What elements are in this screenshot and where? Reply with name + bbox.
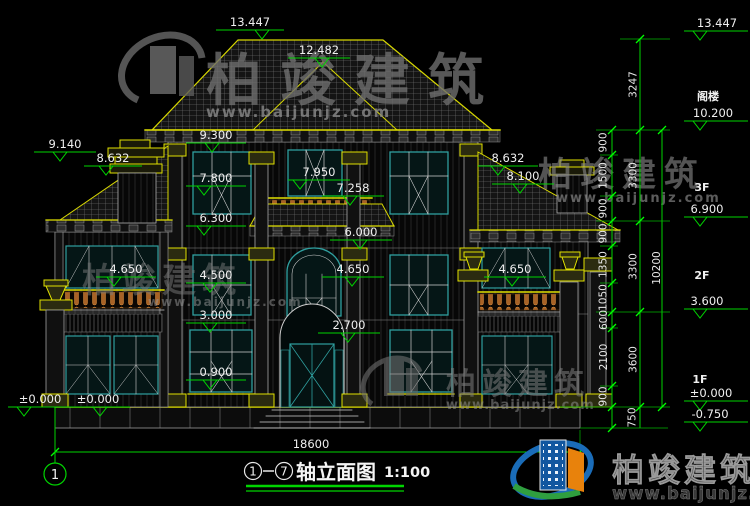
svg-text:±0.000: ±0.000 xyxy=(690,386,733,400)
svg-text:8.100: 8.100 xyxy=(507,169,540,183)
svg-text:±0.000: ±0.000 xyxy=(77,392,120,406)
svg-text:1350: 1350 xyxy=(598,251,610,278)
svg-text:6.000: 6.000 xyxy=(345,225,378,239)
watermark-url-text: www.baijunjz.com xyxy=(206,103,391,121)
svg-text:3300: 3300 xyxy=(628,253,640,280)
svg-text:4.650: 4.650 xyxy=(499,262,532,276)
svg-text:600: 600 xyxy=(598,310,610,330)
svg-text:2100: 2100 xyxy=(598,344,610,371)
svg-text:8.632: 8.632 xyxy=(97,151,130,165)
svg-text:900: 900 xyxy=(598,198,610,218)
svg-text:www.baijunjz.com: www.baijunjz.com xyxy=(148,295,303,309)
svg-text:18600: 18600 xyxy=(293,437,330,451)
svg-text:3600: 3600 xyxy=(628,346,640,373)
svg-text:7.258: 7.258 xyxy=(337,181,370,195)
svg-text:13.447: 13.447 xyxy=(230,15,270,29)
svg-text:www.baijunjz.com: www.baijunjz.com xyxy=(446,398,595,413)
svg-text:1050: 1050 xyxy=(598,284,610,311)
svg-text:1: 1 xyxy=(51,468,59,483)
svg-text:0.900: 0.900 xyxy=(200,365,233,379)
window-3f-right xyxy=(390,152,448,214)
brand-url-text: www.baijunjz.com xyxy=(612,484,750,503)
svg-text:3.000: 3.000 xyxy=(200,308,233,322)
svg-text:6.300: 6.300 xyxy=(200,211,233,225)
total-height-dim: 10200 xyxy=(651,251,663,284)
svg-text:3.600: 3.600 xyxy=(691,294,724,308)
logo-building-icon xyxy=(384,360,404,396)
svg-text:柏竣建筑: 柏竣建筑 xyxy=(446,367,590,402)
svg-text:7.800: 7.800 xyxy=(200,171,233,185)
svg-text:13.447: 13.447 xyxy=(697,16,737,30)
svg-text:7: 7 xyxy=(280,465,288,479)
floor-label-attic: 阁楼 xyxy=(697,89,719,103)
svg-text:4.500: 4.500 xyxy=(200,268,233,282)
svg-text:2.700: 2.700 xyxy=(333,318,366,332)
svg-text:12.482: 12.482 xyxy=(299,43,339,57)
svg-text:7.950: 7.950 xyxy=(303,165,336,179)
svg-text:3247: 3247 xyxy=(628,71,640,98)
title-text: 轴立面图 xyxy=(296,460,376,484)
title-scale: 1:100 xyxy=(384,465,430,481)
svg-text:-0.750: -0.750 xyxy=(691,407,728,421)
svg-text:9.300: 9.300 xyxy=(200,128,233,142)
window-1f-left xyxy=(188,330,254,394)
svg-text:3300: 3300 xyxy=(628,162,640,189)
svg-text:10.200: 10.200 xyxy=(693,106,733,120)
svg-text:9.140: 9.140 xyxy=(49,137,82,151)
svg-text:900: 900 xyxy=(598,223,610,243)
svg-text:1500: 1500 xyxy=(598,162,610,189)
floor-label-3f: 3F xyxy=(694,181,709,194)
svg-text:1: 1 xyxy=(249,465,257,479)
floor-label-2f: 2F xyxy=(694,269,709,282)
svg-text:4.650: 4.650 xyxy=(110,262,143,276)
logo-building-icon xyxy=(150,46,176,94)
svg-text:8.632: 8.632 xyxy=(492,151,525,165)
svg-text:900: 900 xyxy=(598,386,610,406)
svg-text:±0.000: ±0.000 xyxy=(19,392,62,406)
floor-label-1f: 1F xyxy=(692,373,707,386)
cad-canvas: 柏竣建筑 www.baijunjz.com 柏竣建筑 www.baijunjz.… xyxy=(0,0,750,506)
svg-text:750: 750 xyxy=(627,407,639,427)
svg-text:900: 900 xyxy=(598,132,610,152)
window-2f-right xyxy=(390,255,448,315)
svg-text:4.650: 4.650 xyxy=(337,262,370,276)
elevation-sheet: 柏竣建筑 www.baijunjz.com 柏竣建筑 www.baijunjz.… xyxy=(0,0,750,506)
svg-text:6.900: 6.900 xyxy=(691,202,724,216)
logo-building-orange xyxy=(568,448,584,492)
svg-text:柏竣建筑: 柏竣建筑 xyxy=(538,155,706,195)
